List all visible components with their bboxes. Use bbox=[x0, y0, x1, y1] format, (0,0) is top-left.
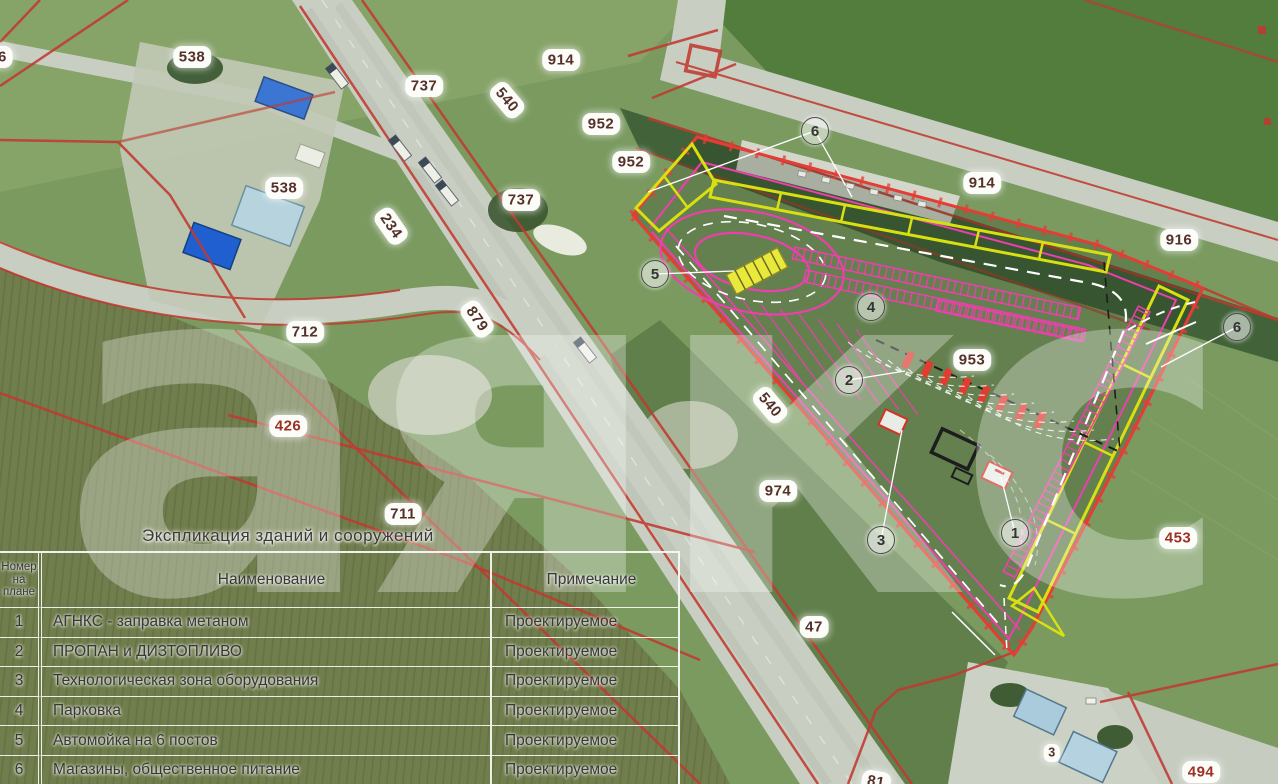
legend-row-name: Технологическая зона оборудования bbox=[38, 666, 490, 696]
site-callout-2: 2 bbox=[835, 366, 863, 394]
legend-row-note: Проектируемое bbox=[490, 696, 678, 726]
parcel-label: 3 bbox=[1045, 746, 1058, 761]
legend-row-number: 6 bbox=[0, 755, 38, 784]
parcel-label: 76 bbox=[0, 48, 11, 67]
legend-header-note: Примечание bbox=[490, 553, 678, 607]
parcel-label: 711 bbox=[386, 505, 420, 524]
parcel-label: 914 bbox=[544, 51, 579, 70]
parcel-label: 47 bbox=[801, 618, 827, 637]
legend-header-number: Номер на плане bbox=[0, 553, 38, 607]
legend-table: Номер на плане Наименование Примечание 1… bbox=[0, 551, 680, 784]
legend-row-note: Проектируемое bbox=[490, 607, 678, 637]
legend-row-name: Магазины, общественное питание bbox=[38, 755, 490, 784]
parcel-label: 916 bbox=[1162, 231, 1197, 250]
legend-row-note: Проектируемое bbox=[490, 637, 678, 667]
parcel-label: 712 bbox=[288, 323, 323, 342]
legend-row-name: Парковка bbox=[38, 696, 490, 726]
legend-row-number: 4 bbox=[0, 696, 38, 726]
legend-row-number: 2 bbox=[0, 637, 38, 667]
legend-row-name: Автомойка на 6 постов bbox=[38, 725, 490, 755]
parcel-label: 538 bbox=[267, 179, 302, 198]
site-callout-5: 5 bbox=[641, 260, 669, 288]
parcel-label: 737 bbox=[504, 191, 539, 210]
legend-row-note: Проектируемое bbox=[490, 725, 678, 755]
legend-header-name: Наименование bbox=[38, 553, 490, 607]
parcel-label: 952 bbox=[584, 115, 619, 134]
site-callout-4: 4 bbox=[857, 293, 885, 321]
satellite-site-plan: аякс 76538538737540914952952737234879712… bbox=[0, 0, 1278, 784]
legend-title: Экспликация зданий и сооружений bbox=[142, 526, 434, 546]
legend-row-name: ПРОПАН и ДИЗТОПЛИВО bbox=[38, 637, 490, 667]
parcel-label: 914 bbox=[965, 174, 1000, 193]
parcel-label: 737 bbox=[407, 77, 442, 96]
legend-row-name: АГНКС - заправка метаном bbox=[38, 607, 490, 637]
legend-row-number: 5 bbox=[0, 725, 38, 755]
legend-row-note: Проектируемое bbox=[490, 666, 678, 696]
legend-grid: Номер на плане Наименование Примечание 1… bbox=[0, 553, 678, 784]
legend-row-number: 1 bbox=[0, 607, 38, 637]
parcel-label: 426 bbox=[271, 417, 306, 436]
site-callout-6: 6 bbox=[1223, 313, 1251, 341]
parcel-label: 494 bbox=[1184, 763, 1219, 782]
site-callout-1: 1 bbox=[1001, 519, 1029, 547]
parcel-label: 453 bbox=[1161, 529, 1196, 548]
legend-row-number: 3 bbox=[0, 666, 38, 696]
site-callout-3: 3 bbox=[867, 526, 895, 554]
parcel-label: 953 bbox=[955, 351, 990, 370]
parcel-label: 952 bbox=[614, 153, 649, 172]
parcel-label: 538 bbox=[175, 48, 210, 67]
site-callout-6: 6 bbox=[801, 117, 829, 145]
parcel-label: 974 bbox=[761, 482, 796, 501]
legend-row-note: Проектируемое bbox=[490, 755, 678, 784]
